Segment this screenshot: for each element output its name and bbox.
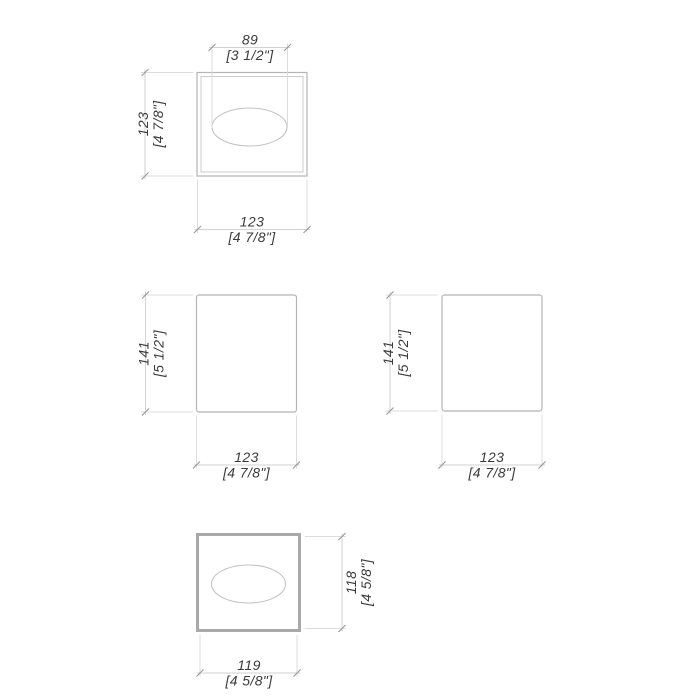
dim-bottom-depth: 118 [4 5/8"] bbox=[305, 533, 374, 632]
dim-value-inch: [5 1/2"] bbox=[395, 329, 411, 378]
box-outline bbox=[442, 295, 542, 411]
side-view: 141 [5 1/2"] 123 [4 7/8"] bbox=[380, 292, 546, 481]
box-outline bbox=[197, 73, 307, 177]
dim-side-width: 123 [4 7/8"] bbox=[439, 415, 546, 481]
dim-value-mm: 123 bbox=[480, 449, 505, 465]
dim-value-mm: 141 bbox=[136, 341, 152, 366]
front-view: 141 [5 1/2"] 123 [4 7/8"] bbox=[136, 292, 301, 481]
dim-value-mm: 123 bbox=[234, 449, 259, 465]
top-view: 89 [3 1/2"] 123 [4 7/8"] 123 [4 7/8"] bbox=[135, 32, 311, 246]
dim-value-inch: [4 7/8"] bbox=[150, 100, 166, 149]
dim-value-inch: [4 7/8"] bbox=[222, 465, 271, 481]
box-outline bbox=[198, 535, 300, 631]
dim-top-depth: 123 [4 7/8"] bbox=[135, 69, 194, 180]
dim-value-inch: [4 7/8"] bbox=[227, 229, 276, 245]
dim-front-height: 141 [5 1/2"] bbox=[136, 292, 194, 416]
dim-value-mm: 118 bbox=[343, 571, 359, 595]
dim-value-mm: 89 bbox=[242, 32, 258, 48]
technical-drawing: 89 [3 1/2"] 123 [4 7/8"] 123 [4 7/8"] bbox=[0, 0, 700, 700]
bottom-view: 118 [4 5/8"] 119 [4 5/8"] bbox=[197, 533, 375, 689]
dim-value-mm: 119 bbox=[237, 657, 261, 673]
dim-side-height: 141 [5 1/2"] bbox=[380, 292, 438, 415]
dim-value-inch: [3 1/2"] bbox=[225, 47, 274, 63]
drawing-canvas: 89 [3 1/2"] 123 [4 7/8"] 123 [4 7/8"] bbox=[0, 0, 700, 700]
dim-value-inch: [5 1/2"] bbox=[151, 329, 167, 378]
dim-bottom-width: 119 [4 5/8"] bbox=[197, 635, 301, 689]
dim-top-width: 123 [4 7/8"] bbox=[194, 180, 311, 246]
dim-value-mm: 141 bbox=[380, 341, 396, 366]
box-outline bbox=[197, 295, 297, 412]
dim-value-inch: [4 5/8"] bbox=[224, 673, 273, 689]
dim-front-width: 123 [4 7/8"] bbox=[193, 416, 300, 481]
dim-value-inch: [4 5/8"] bbox=[358, 558, 374, 607]
dim-value-inch: [4 7/8"] bbox=[467, 465, 516, 481]
dim-value-mm: 123 bbox=[135, 112, 151, 137]
dim-value-mm: 123 bbox=[240, 214, 265, 230]
